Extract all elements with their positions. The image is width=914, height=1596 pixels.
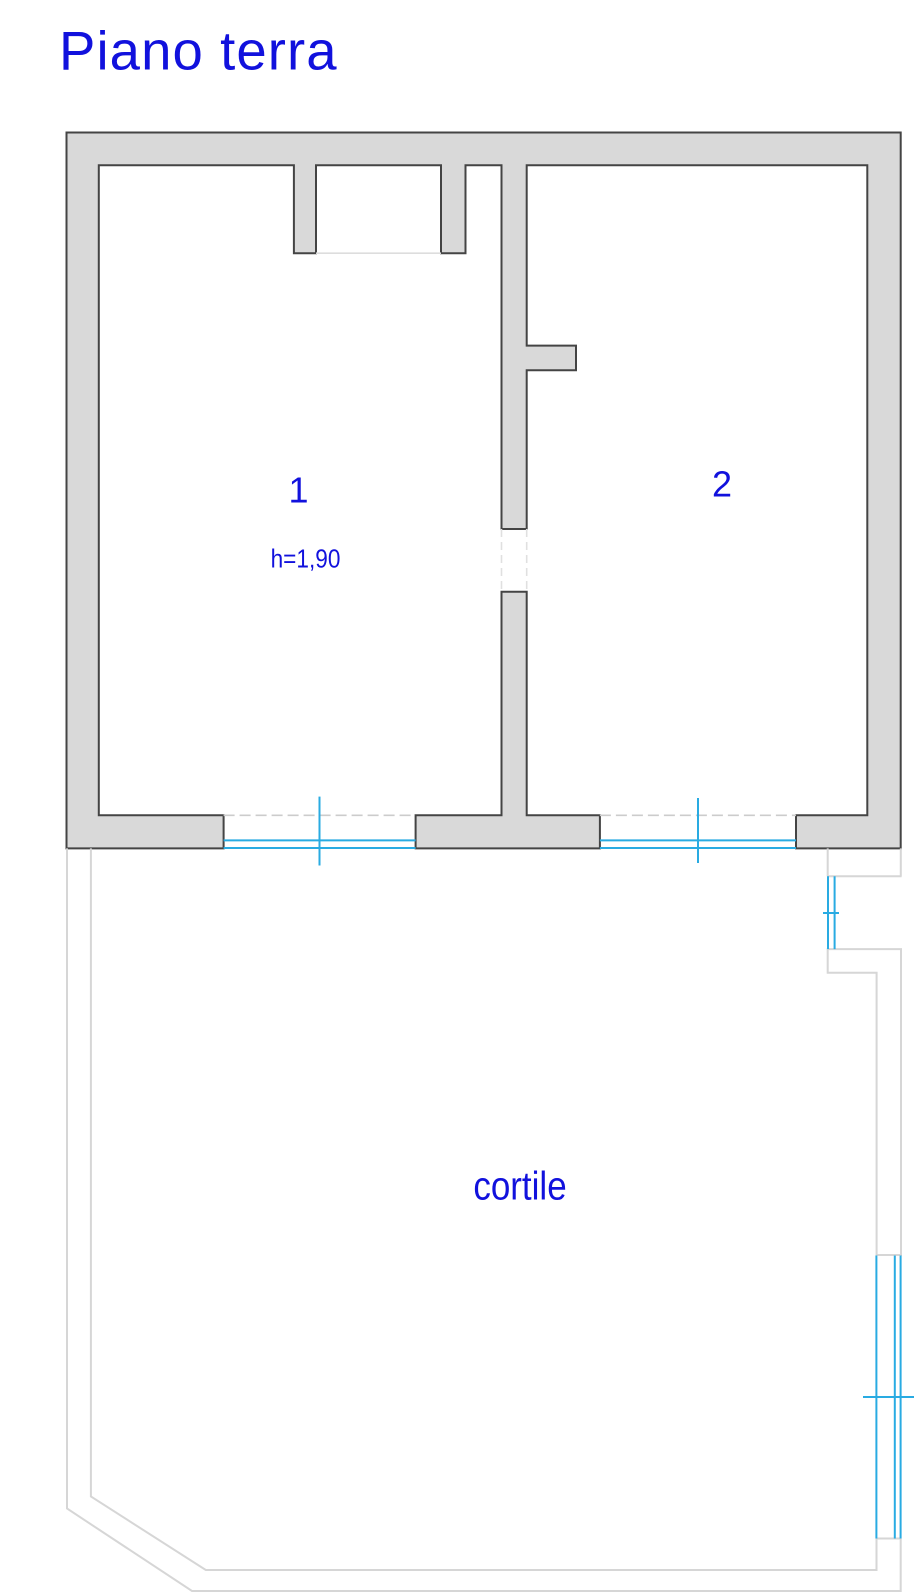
svg-text:1: 1 <box>288 470 308 511</box>
svg-text:cortile: cortile <box>473 1163 566 1208</box>
svg-text:Piano terra: Piano terra <box>59 21 338 82</box>
svg-text:h=1,90: h=1,90 <box>271 545 341 574</box>
svg-text:2: 2 <box>712 464 732 505</box>
